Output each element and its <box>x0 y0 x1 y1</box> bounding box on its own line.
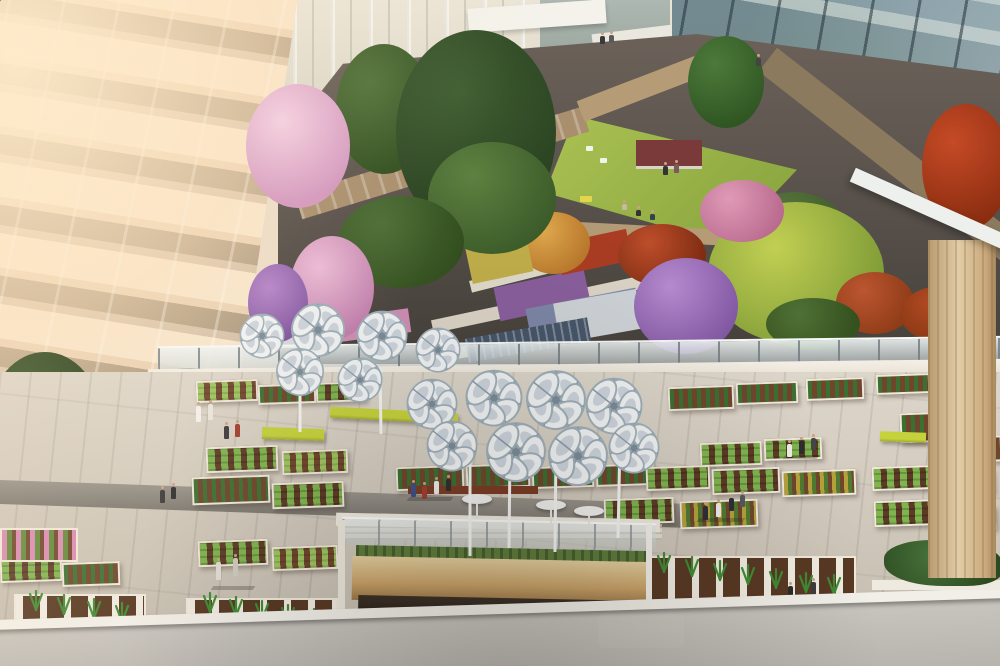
table-umbrella <box>536 500 566 510</box>
pedestrian <box>787 444 792 457</box>
pedestrian <box>740 495 745 507</box>
pedestrian <box>208 404 213 420</box>
shadow <box>407 497 454 501</box>
pedestrian <box>171 487 176 499</box>
pedestrian <box>799 441 804 454</box>
railing-post-2 <box>338 520 345 612</box>
pedestrian <box>729 498 734 511</box>
railing-post <box>646 524 652 602</box>
faint-watermark <box>598 614 684 648</box>
gardener <box>233 558 238 576</box>
pedestrian-small <box>609 35 614 43</box>
pedestrian <box>196 406 201 422</box>
pedestrian-small <box>663 166 668 175</box>
pedestrian-small <box>600 36 605 44</box>
lawn-sitter <box>636 210 641 216</box>
pedestrian <box>235 424 240 437</box>
pedestrian <box>224 426 229 439</box>
lawn-sitter <box>622 204 627 210</box>
pedestrian <box>434 481 439 494</box>
pedestrian <box>411 484 416 497</box>
table-umbrella <box>462 494 492 504</box>
structural-pillar <box>928 240 996 578</box>
pedestrian <box>446 479 451 491</box>
pedestrian <box>716 503 721 517</box>
table-umbrella <box>574 506 604 516</box>
pedestrian <box>703 506 708 520</box>
courtyard-rendering <box>0 0 1000 666</box>
pedestrian-small <box>674 164 679 173</box>
lawn-sitter <box>650 214 655 220</box>
pedestrian-small <box>756 58 761 66</box>
pedestrian <box>811 438 816 450</box>
gardener <box>216 562 221 580</box>
pedestrian <box>422 486 427 499</box>
pedestrian <box>160 490 165 503</box>
shadow <box>211 586 256 590</box>
